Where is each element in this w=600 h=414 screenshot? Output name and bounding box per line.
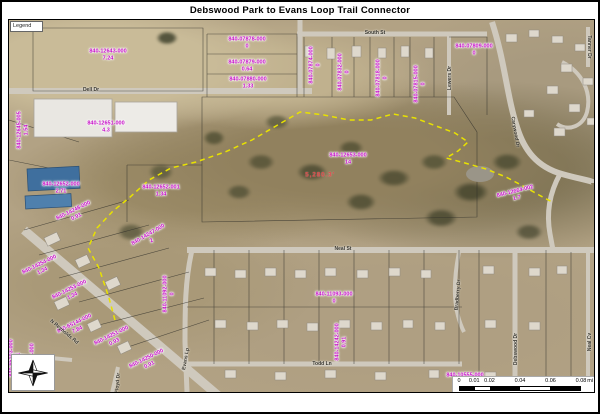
parcel-acreage: 1.54 [23, 111, 30, 148]
scale-tick: 0.01 [469, 378, 480, 384]
parcel-id: 840-12653-000 [329, 153, 366, 160]
parcel-id: 840-12643-000 [89, 49, 126, 56]
parcel-id: 840-07880-000 [229, 77, 266, 84]
trail-length-measurement: 5,280.3' [305, 172, 335, 179]
street-label: Dell Dr [83, 87, 99, 93]
parcel-acreage: 0 [228, 43, 265, 50]
street-label: Neal St [335, 246, 352, 252]
parcel-acreage: 0 [420, 65, 427, 102]
parcel-acreage: 7.24 [89, 55, 126, 62]
parcel-acreage: 0 [455, 50, 492, 57]
scale-tick: 0.08 [576, 378, 587, 384]
parcel-id: 840-07832-000 [338, 53, 345, 90]
scale-tick: 0.04 [515, 378, 526, 384]
scale-bar-segment [475, 387, 490, 390]
parcel-label: 840-12651-0004.3 [87, 121, 124, 134]
scale-bar-segment [490, 387, 520, 390]
scale-bar-segment [550, 387, 580, 390]
scale-bar-segment [520, 387, 550, 390]
parcel-label: 840-07809-0000 [455, 44, 492, 57]
north-arrow-icon [16, 357, 50, 389]
street-label: Lewers Dr [447, 66, 453, 90]
parcel-label: 840-12653-00014 [329, 153, 366, 166]
parcel-id: 840-14242-000 [335, 323, 342, 360]
parcel-acreage: 0.64 [228, 66, 265, 73]
parcel-id: 840-07818-000 [376, 59, 383, 96]
parcel-acreage: 4.3 [87, 127, 124, 134]
parcel-id: 840-12651-000 [87, 121, 124, 128]
parcel-id: 840-11092-000 [163, 275, 170, 312]
parcel-acreage: 2.71 [42, 188, 79, 195]
parcel-label: 840-12652-0011.34 [142, 185, 179, 198]
parcel-acreage: 0 [382, 59, 389, 96]
north-arrow-box [11, 354, 55, 391]
parcel-id: 840-07879-000 [228, 60, 265, 67]
parcel-label: 840-12652-0002.71 [42, 182, 79, 195]
scale-bar-segment [460, 387, 475, 390]
parcel-id: 840-07815-000 [414, 65, 421, 102]
parcel-label: 840-07818-0000 [376, 59, 389, 96]
map-features-layer [9, 20, 594, 392]
street-label: Tanner Dr [586, 35, 592, 58]
parcel-id: 840-11093-000 [315, 292, 352, 299]
legend-label: Legend [13, 23, 31, 29]
roads-group [9, 20, 594, 392]
trail-connector-line [88, 112, 554, 320]
parcel-acreage: 0 [344, 53, 351, 90]
parcel-label: 840-07878-0000 [228, 37, 265, 50]
parcel-label: 840-07880-0001.33 [229, 77, 266, 90]
street-label: South St [365, 30, 386, 36]
parcel-label: 840-11093-0000 [315, 292, 352, 305]
parcel-id: 840-12645-005 [17, 111, 24, 148]
parcel-id: 840-12652-000 [42, 182, 79, 189]
parcel-id: 840-07874-000 [309, 46, 316, 83]
parcel-label: 840-11092-0000 [163, 275, 176, 312]
map-canvas: 840-12643-0007.24840-07878-0000840-07879… [8, 19, 595, 393]
legend-box: Legend [10, 21, 43, 32]
parcel-id: 840-12652-001 [142, 185, 179, 192]
parcel-label: 840-07832-0000 [338, 53, 351, 90]
parcel-label: 840-07874-0000 [309, 46, 322, 83]
scale-bar-unit: mi [587, 378, 593, 384]
parcel-label: 840-14242-0000.91 [335, 323, 348, 360]
scale-tick: 0.06 [545, 378, 556, 384]
parcel-label: 840-12645-0051.54 [17, 111, 30, 148]
parcel-acreage: 14 [329, 159, 366, 166]
scale-bar: mi 00.010.020.040.060.08 [452, 376, 594, 393]
parcel-acreage: 1.33 [229, 83, 266, 90]
scale-tick: 0 [457, 378, 460, 384]
parcel-id: 840-07809-000 [455, 44, 492, 51]
scale-bar-segments [459, 386, 581, 391]
parcel-label: 840-07879-0000.64 [228, 60, 265, 73]
parcel-acreage: 0 [169, 275, 176, 312]
parcel-acreage: 1.34 [142, 191, 179, 198]
parcel-label: 840-12643-0007.24 [89, 49, 126, 62]
parcel-acreage: 0.91 [341, 323, 348, 360]
parcel-acreage: 0 [315, 46, 322, 83]
street-label: Todd Ln [312, 361, 331, 367]
parcel-acreage: 0 [315, 298, 352, 305]
street-label: Debswood Dr [513, 333, 519, 365]
street-label: Neal Cv [587, 333, 593, 351]
parcel-id: 840-07878-000 [228, 37, 265, 44]
parcel-label: 840-07815-0000 [414, 65, 427, 102]
map-document-page: Debswood Park to Evans Loop Trail Connec… [0, 0, 600, 414]
map-title: Debswood Park to Evans Loop Trail Connec… [2, 5, 598, 16]
scale-tick: 0.02 [484, 378, 495, 384]
